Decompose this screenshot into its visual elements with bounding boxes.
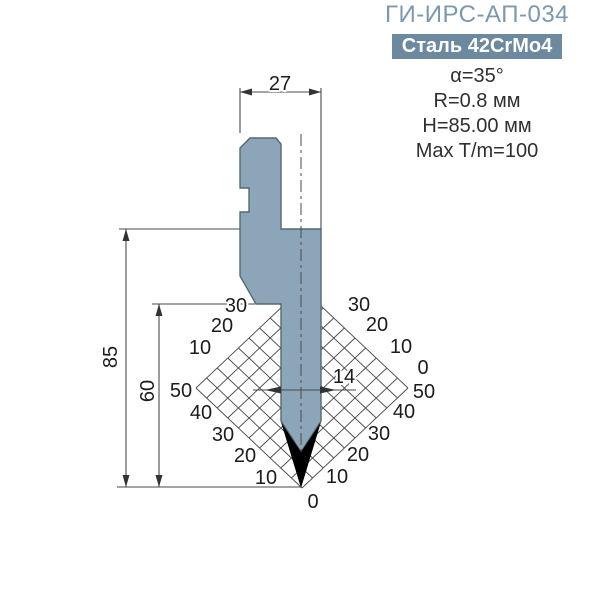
dim-14-label: 14 xyxy=(333,366,355,388)
dimension-85: 85 xyxy=(100,229,240,487)
catalog-page: ГИ-ИРС-АП-034 Сталь 42CrMo4 α=35° R=0.8 … xyxy=(0,0,600,600)
scale-label: 50 xyxy=(170,380,192,402)
scale-label: 30 xyxy=(348,294,370,316)
arrow-right-icon xyxy=(309,89,321,96)
arrow-left-icon xyxy=(265,387,281,394)
dim-85-label: 85 xyxy=(100,346,122,368)
arrow-up-icon xyxy=(123,229,130,241)
scale-label: 50 xyxy=(413,381,435,403)
punch-body xyxy=(240,138,321,452)
arrow-up-icon xyxy=(156,304,163,316)
scale-label: 0 xyxy=(417,357,428,379)
scale-label: 30 xyxy=(368,423,390,445)
scale-label: 20 xyxy=(211,315,233,337)
scale-label: 20 xyxy=(366,314,388,336)
technical-drawing: 27 85 60 14 3020105040302010030 xyxy=(0,0,600,600)
scale-label: 30 xyxy=(225,295,247,317)
arrow-left-icon xyxy=(240,89,252,96)
dim-60-label: 60 xyxy=(137,380,159,402)
scale-label: 30 xyxy=(212,424,234,446)
scale-label: 10 xyxy=(390,336,412,358)
scale-label: 10 xyxy=(189,337,211,359)
scale-label: 20 xyxy=(234,445,256,467)
scale-label: 10 xyxy=(326,466,348,488)
arrow-down-icon xyxy=(156,475,163,487)
scale-label: 0 xyxy=(307,491,318,513)
scale-label: 40 xyxy=(393,401,415,423)
dim-27-label: 27 xyxy=(269,73,291,95)
scale-label: 20 xyxy=(347,444,369,466)
scale-label: 40 xyxy=(190,402,212,424)
scale-label: 10 xyxy=(255,467,277,489)
arrow-down-icon xyxy=(123,475,130,487)
